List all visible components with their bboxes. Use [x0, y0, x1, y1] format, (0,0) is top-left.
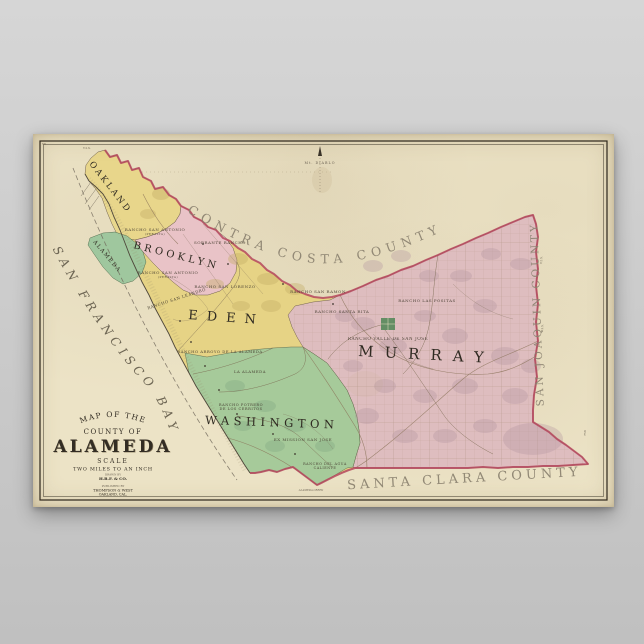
- title-drawn-by-name: H.B.F. & CO.: [99, 476, 128, 481]
- rancho-label: RANCHO SAN LORENZO: [194, 284, 256, 289]
- rancho-label: RANCHO SANTA RITA: [315, 309, 370, 314]
- rancho-label: RANCHO ARROYO DE LA ALAMEDA: [177, 349, 262, 354]
- title-line2: COUNTY OF: [84, 428, 143, 436]
- mt-diablo-label: Mt. DIABLO: [304, 161, 335, 165]
- township-tick-top: T.2.S.: [83, 146, 91, 150]
- title-line3: ALAMEDA: [52, 437, 172, 457]
- santa-clara-county-label: SANTA CLARA COUNTY: [347, 465, 582, 493]
- plate-number: 758: [583, 430, 587, 436]
- rancho-label: SOBRANTE RANCHO: [194, 240, 246, 245]
- rancho-sublabel: DE LOS CERRITOS: [219, 407, 262, 411]
- corner-number: 58: [42, 142, 46, 146]
- rancho-label: LA ALAMEDA: [234, 369, 266, 374]
- map-poster: Mt. DIABLO CONTRA COSTA COUNTY SAN JOAQU…: [33, 134, 614, 507]
- alameda-county-map: Mt. DIABLO CONTRA COSTA COUNTY SAN JOAQU…: [33, 134, 614, 507]
- rancho-sublabel: CALIENTE: [314, 466, 337, 470]
- title-line1: MAP OF THE: [78, 410, 147, 425]
- title-publisher-city: OAKLAND, CAL.: [99, 493, 128, 497]
- rancho-label: EX MISSION SAN JOSE: [274, 437, 332, 442]
- title-cartouche: MAP OF THE COUNTY OF ALAMEDA ALAMEDA SCA…: [52, 410, 173, 497]
- title-scale-label: SCALE: [97, 458, 128, 465]
- township-tick-right-upper: T.2.S.: [539, 256, 543, 264]
- creek-label: ALAMEDA CREEK: [298, 488, 325, 492]
- rancho-label: RANCHO SAN RAMON: [290, 289, 346, 294]
- township-tick-right-lower: T.3.S.: [540, 324, 544, 332]
- town-plat: [381, 318, 395, 330]
- rancho-sublabel: (PERALTA): [158, 275, 178, 279]
- rancho-label: RANCHO LAS POSITAS: [398, 298, 455, 303]
- title-publisher-prefix: PUBLISHED BY: [102, 484, 125, 488]
- rancho-sublabel: (PERALTA): [145, 232, 165, 236]
- rancho-label: RANCHO VALLE DE SAN JOSE: [348, 337, 429, 342]
